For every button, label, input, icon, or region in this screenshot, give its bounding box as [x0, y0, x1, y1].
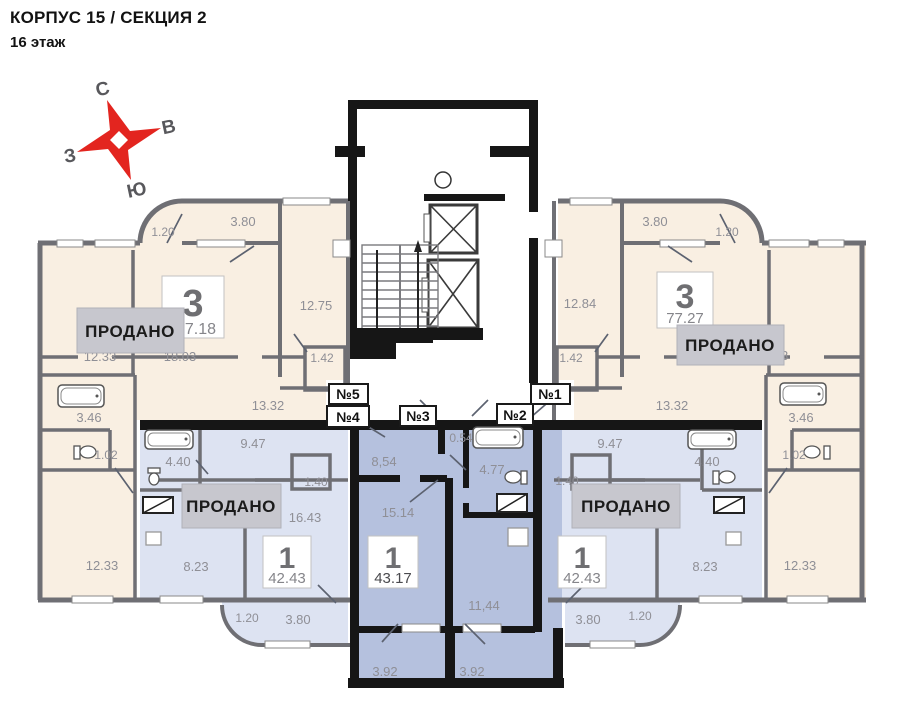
dim-left1-kitchen: 8.23 — [183, 559, 208, 574]
corridor-south-wall — [140, 420, 762, 430]
sold-banner: ПРОДАНО — [572, 484, 680, 528]
compass-north-label: С — [93, 78, 112, 102]
compass-east-label: В — [160, 116, 178, 139]
dim-left3-room-top: 12.75 — [300, 298, 333, 313]
core-wall-stub-right — [490, 146, 538, 157]
dim-left1-wc: 1.40 — [304, 475, 328, 489]
core-wall-stub-left — [335, 146, 365, 157]
dim-left1-balc-small: 1.20 — [235, 611, 259, 625]
unit-tag-label: №5 — [336, 386, 360, 402]
dim-right3-hall: 13.32 — [656, 398, 689, 413]
unit-tag-label: №4 — [336, 409, 360, 425]
dim-right1-hall: 9.47 — [597, 436, 622, 451]
dim-left1-bath: 4.40 — [165, 454, 190, 469]
core-partition — [424, 194, 505, 201]
sold-banner-label: ПРОДАНО — [186, 497, 276, 516]
sold-banner: ПРОДАНО — [677, 325, 784, 365]
page-title: КОРПУС 15 / СЕКЦИЯ 2 — [10, 8, 207, 28]
elevator-1-icon — [424, 205, 477, 253]
elevator-2-icon — [422, 260, 478, 328]
dim-left3-balc-small: 1.20 — [151, 225, 175, 239]
dim-center-niche: 0.54 — [449, 431, 473, 445]
dim-right3-room-top: 12.84 — [564, 296, 597, 311]
core-wall-right-lower — [529, 238, 538, 383]
plate-right3: 3 77.27 — [657, 272, 713, 328]
compass-south-label: Ю — [125, 178, 149, 203]
balcony-divider — [445, 626, 455, 686]
balcony-wall-right — [553, 628, 563, 686]
core-wall-bottom-a — [348, 328, 433, 343]
plate-center1: 1 43.17 — [368, 536, 418, 588]
sold-banner: ПРОДАНО — [182, 484, 281, 528]
plate-right1-total: 42.43 — [563, 570, 601, 587]
unit-tag-1: №1 — [531, 384, 570, 404]
dim-right3-balc: 3.80 — [642, 214, 667, 229]
dim-right3-bedroom: 12.33 — [784, 558, 817, 573]
center-wall-right — [533, 420, 542, 632]
dim-left3-hall: 13.32 — [252, 398, 285, 413]
compass-rose: С В З Ю — [62, 78, 177, 203]
dim-right1-balc-small: 1.20 — [628, 609, 652, 623]
core-wall-bottom-c — [425, 328, 483, 340]
building-core — [335, 100, 538, 383]
dim-left3-wc: 1.02 — [94, 448, 118, 462]
dim-center-hall: 8,54 — [371, 454, 396, 469]
sold-banner-label: ПРОДАНО — [685, 336, 775, 355]
unit-tag-2: №2 — [497, 404, 533, 425]
dim-right3-balc-small: 1.20 — [715, 225, 739, 239]
plate-right1: 1 42.43 — [558, 536, 606, 588]
garbage-chute-icon — [435, 172, 451, 188]
bathtub-icon — [145, 430, 193, 449]
dim-right3-bath: 3.46 — [788, 410, 813, 425]
unit-tag-3: №3 — [400, 406, 436, 426]
dim-left1-balc: 3.80 — [285, 612, 310, 627]
dim-left1-hall: 9.47 — [240, 436, 265, 451]
page-header: КОРПУС 15 / СЕКЦИЯ 2 16 этаж — [10, 8, 207, 51]
unit-tag-4: №4 — [327, 406, 369, 427]
dim-center-balc-a: 3.92 — [372, 664, 397, 679]
center-wall-bottom — [348, 678, 564, 688]
core-wall-bottom-b — [348, 343, 396, 359]
dim-right1-balc: 3.80 — [575, 612, 600, 627]
bathtub-icon — [688, 430, 736, 449]
dim-right3-storage: 1.42 — [559, 351, 583, 365]
plate-right3-total: 77.27 — [666, 310, 704, 327]
dim-right1-bath: 4.40 — [694, 454, 719, 469]
sold-banner-label: ПРОДАНО — [581, 497, 671, 516]
dim-left3-bath: 3.46 — [76, 410, 101, 425]
dim-center-bath: 4.77 — [479, 462, 504, 477]
plate-left1: 1 42.43 — [263, 536, 311, 588]
dim-right3-wc: 1.02 — [782, 448, 806, 462]
dim-left3-bedroom: 12.33 — [86, 558, 119, 573]
bathtub-icon — [473, 427, 523, 448]
center-wall-left — [350, 420, 359, 688]
floor-plan-svg: С В З Ю — [0, 0, 900, 724]
dim-left1-living: 16.43 — [289, 510, 322, 525]
plate-left3-rooms: 3 — [182, 283, 203, 325]
dim-right1-kitchen: 8.23 — [692, 559, 717, 574]
unit-tag-label: №3 — [406, 408, 430, 424]
core-wall-top — [348, 100, 538, 109]
bathtub-icon — [780, 383, 826, 405]
plate-left1-total: 42.43 — [268, 570, 306, 587]
unit-tag-label: №2 — [503, 407, 527, 423]
dim-center-kitchen: 11,44 — [468, 598, 500, 613]
bathtub-icon — [58, 385, 104, 407]
unit-tag-5: №5 — [329, 384, 368, 404]
sold-banner: ПРОДАНО — [77, 308, 184, 353]
dim-center-room: 15.14 — [382, 505, 415, 520]
plate-center1-total: 43.17 — [374, 570, 412, 587]
dim-left3-balc: 3.80 — [230, 214, 255, 229]
floorplan-page: КОРПУС 15 / СЕКЦИЯ 2 16 этаж С В З Ю — [0, 0, 900, 724]
dim-center-balc-b: 3.92 — [459, 664, 484, 679]
center-kitchen-wall — [445, 478, 453, 628]
sold-banner-label: ПРОДАНО — [85, 322, 175, 341]
unit-tag-label: №1 — [538, 386, 562, 402]
floor-subtitle: 16 этаж — [10, 34, 207, 51]
dim-left3-storage: 1.42 — [310, 351, 334, 365]
compass-west-label: З — [62, 145, 77, 168]
